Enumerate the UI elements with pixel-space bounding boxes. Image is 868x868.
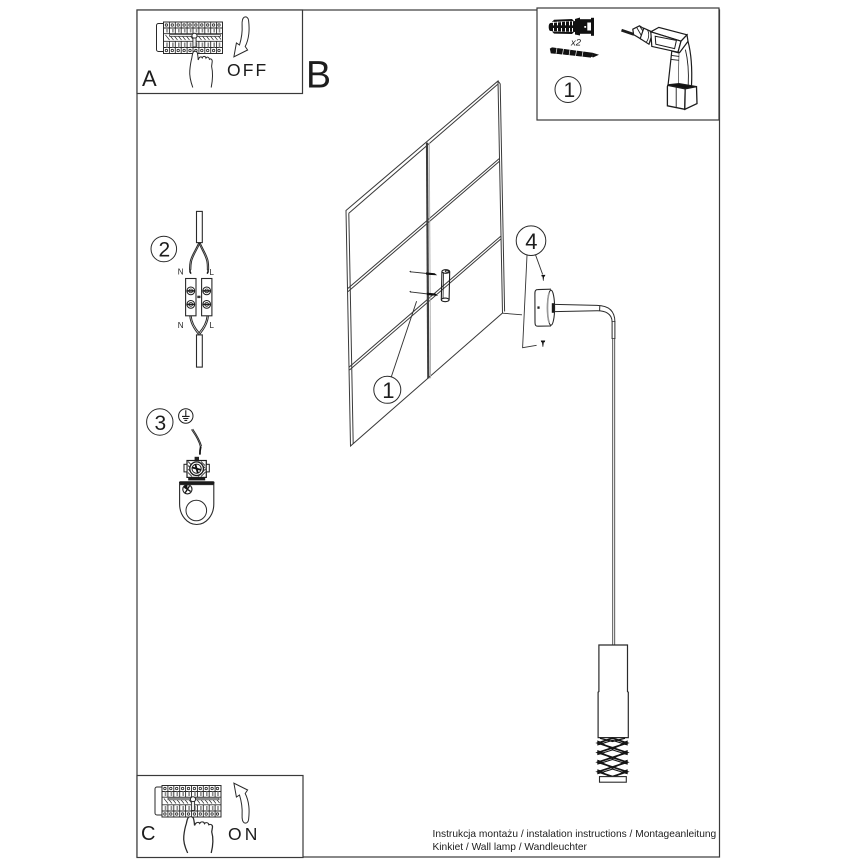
svg-text:x2: x2 <box>570 38 582 49</box>
svg-text:C: C <box>141 823 155 845</box>
svg-text:1: 1 <box>382 378 394 403</box>
svg-text:B: B <box>306 55 331 97</box>
svg-text:L: L <box>210 321 215 330</box>
svg-text:ON: ON <box>228 824 260 844</box>
svg-text:Instrukcja montażu / instalati: Instrukcja montażu / instalation instruc… <box>433 829 717 840</box>
svg-text:Kinkiet / Wall lamp / Wandleuc: Kinkiet / Wall lamp / Wandleuchter <box>433 842 588 853</box>
svg-text:L: L <box>210 268 215 277</box>
svg-text:A: A <box>142 66 157 91</box>
svg-text:3: 3 <box>155 412 167 435</box>
svg-text:1: 1 <box>564 79 576 102</box>
svg-text:OFF: OFF <box>227 60 268 80</box>
svg-text:4: 4 <box>525 229 537 254</box>
svg-text:2: 2 <box>159 239 171 262</box>
svg-text:N: N <box>178 321 184 330</box>
svg-text:N: N <box>178 268 184 277</box>
